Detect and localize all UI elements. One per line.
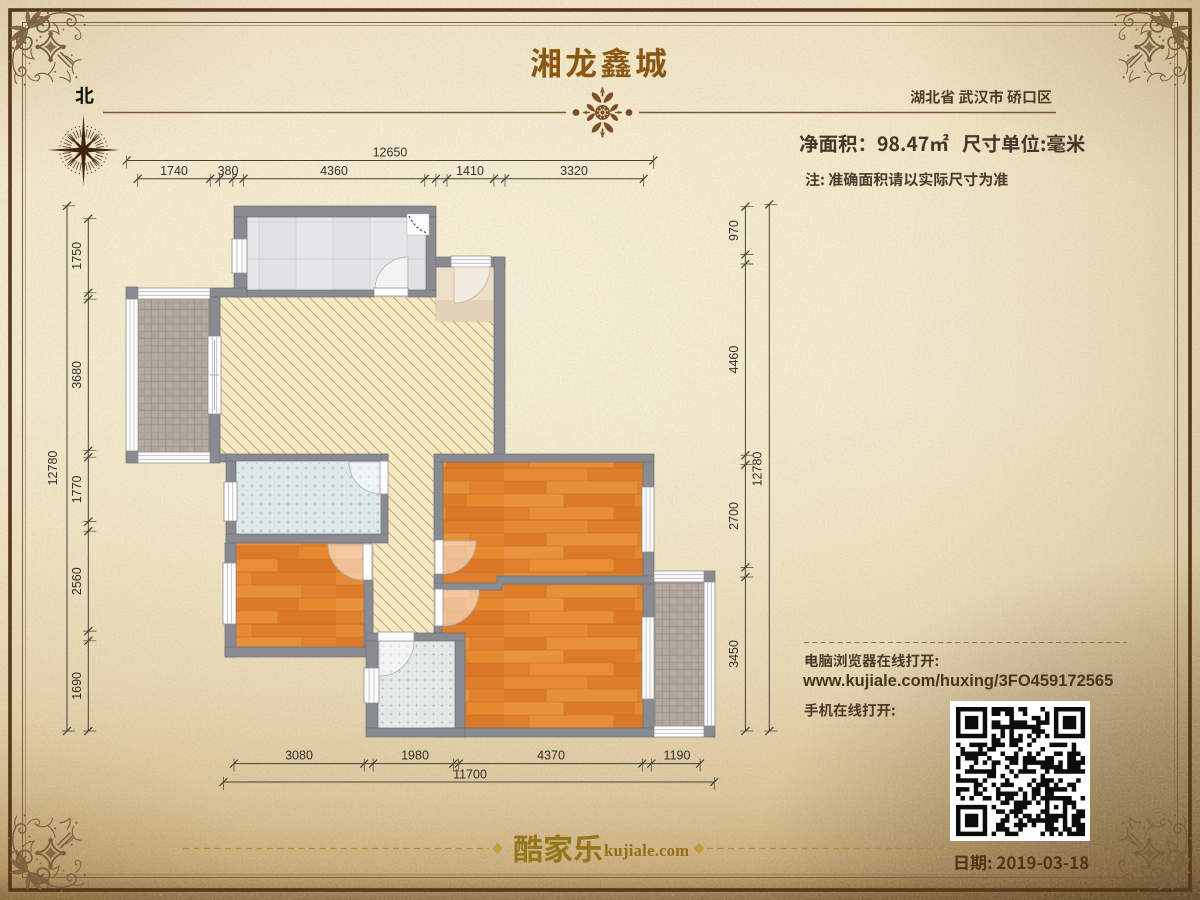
svg-text:3680: 3680 [70,361,84,389]
svg-text:4460: 4460 [727,346,741,374]
svg-text:1190: 1190 [664,749,691,763]
svg-text:12650: 12650 [373,146,408,160]
svg-text:3450: 3450 [727,640,741,668]
svg-text:11700: 11700 [453,768,487,782]
svg-text:970: 970 [727,220,741,241]
svg-text:1740: 1740 [160,164,188,178]
svg-text:2700: 2700 [727,502,741,530]
svg-text:3080: 3080 [285,749,313,763]
svg-text:1410: 1410 [456,164,484,178]
svg-text:3320: 3320 [560,164,588,178]
svg-text:1980: 1980 [401,749,429,763]
svg-text:kujiale.com: kujiale.com [604,841,689,860]
svg-text:4360: 4360 [320,164,348,178]
svg-text:380: 380 [218,164,239,178]
svg-text:1770: 1770 [70,475,84,503]
svg-text:1690: 1690 [70,672,84,700]
svg-text:1750: 1750 [70,242,84,270]
svg-text:12780: 12780 [46,451,60,486]
svg-text:www.kujiale.com/huxing/3FO4591: www.kujiale.com/huxing/3FO459172565 [802,672,1113,690]
svg-text:4370: 4370 [537,749,565,763]
svg-text:12780: 12780 [751,452,765,487]
svg-text:2560: 2560 [70,567,84,595]
